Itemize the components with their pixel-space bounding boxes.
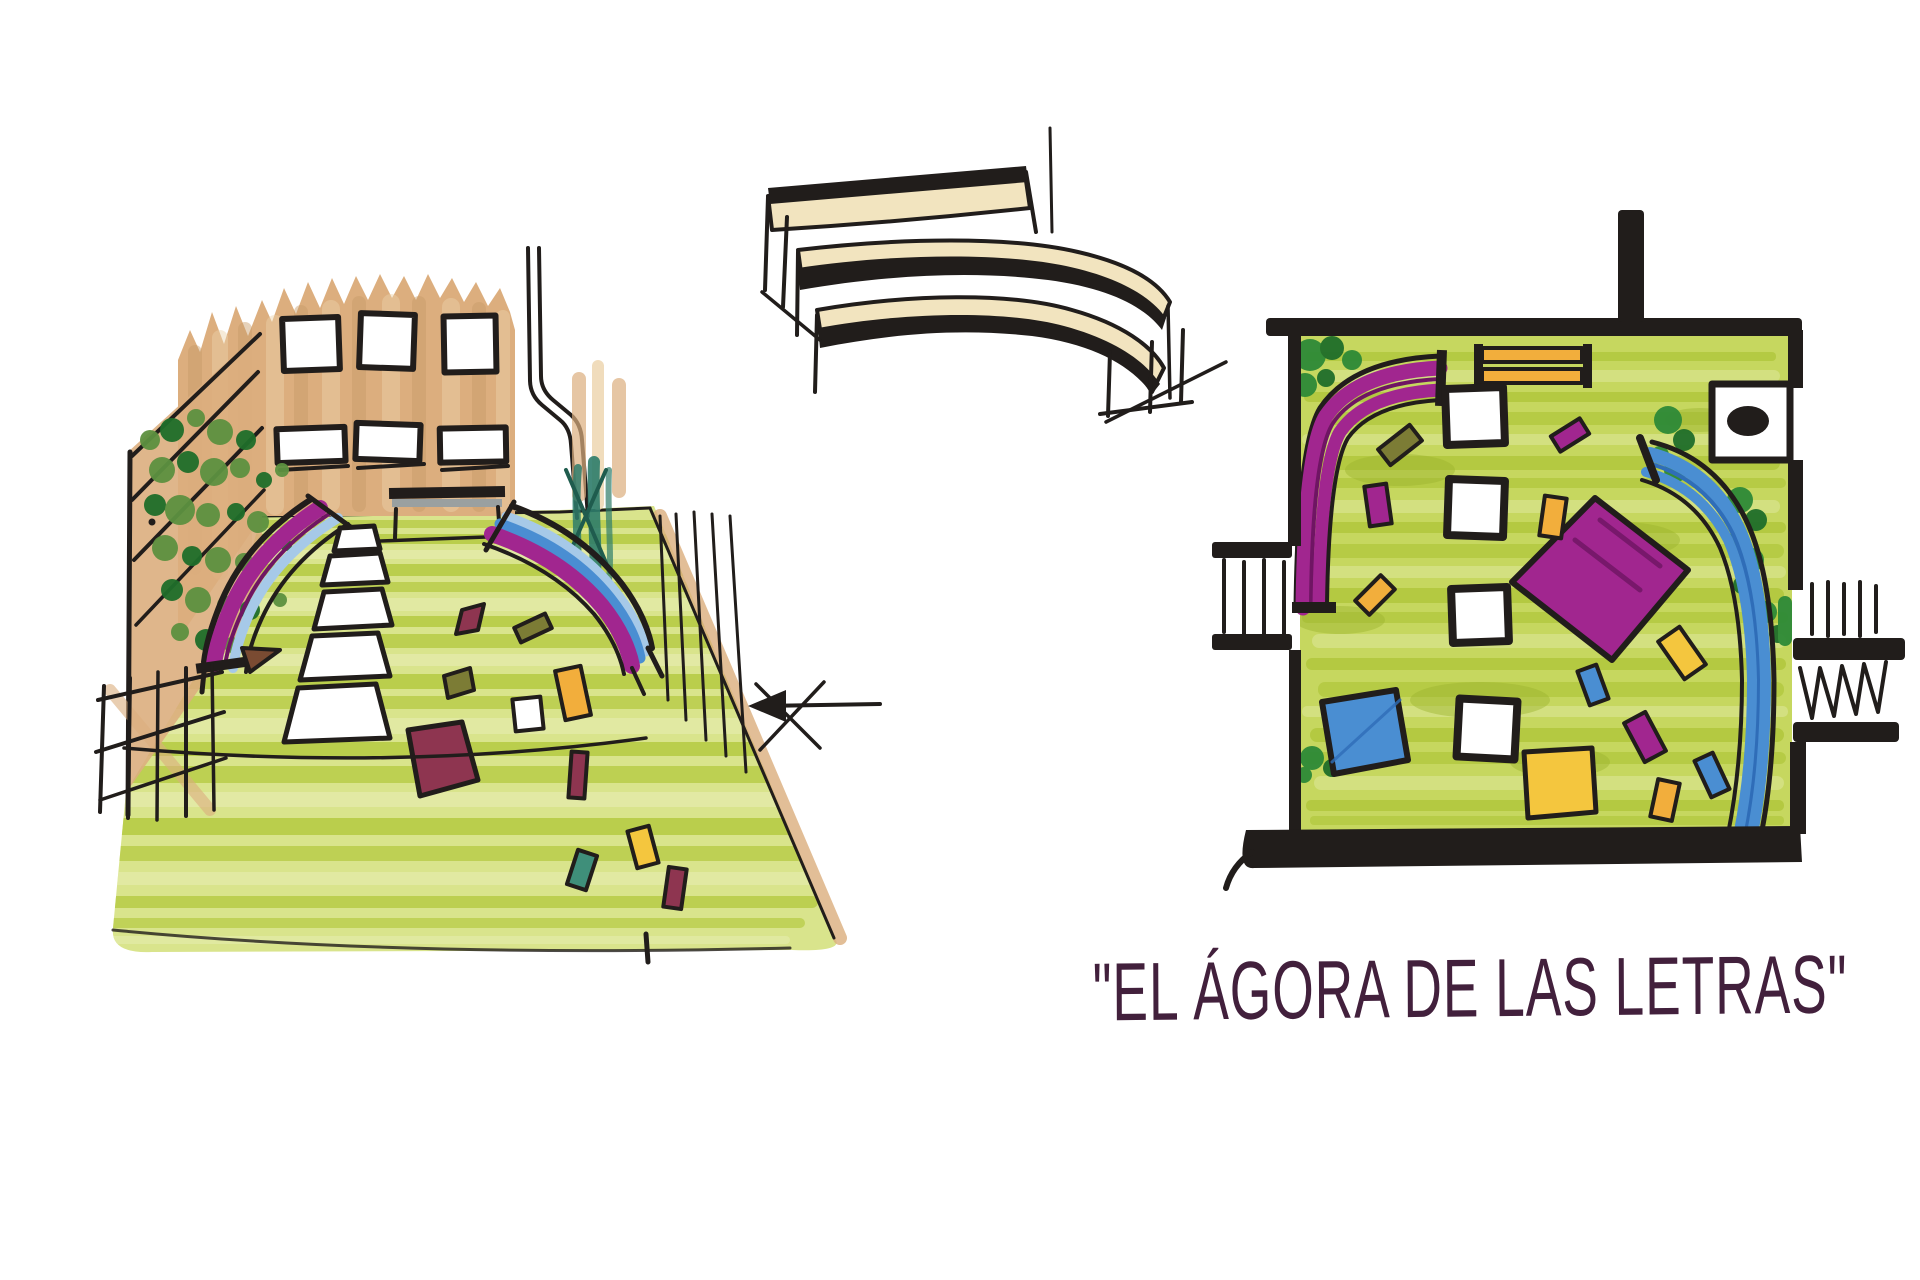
plan-yellow-blanket xyxy=(1524,748,1596,818)
steps-bench-sketch xyxy=(762,128,1226,422)
tree-icon xyxy=(1727,406,1769,436)
wall-pillar xyxy=(1618,210,1644,322)
plumb-line xyxy=(1050,128,1052,232)
facade-windows-lower xyxy=(276,423,506,463)
plan-planter xyxy=(1712,384,1790,460)
plan-sketch xyxy=(1212,210,1905,888)
sketch-page: "EL ÁGORA DE LAS LETRAS" xyxy=(0,0,1920,1280)
sketch-image xyxy=(0,0,1920,1280)
facade-windows-upper xyxy=(282,313,496,372)
perspective-sketch xyxy=(66,248,880,962)
caption-title: "EL ÁGORA DE LAS LETRAS" xyxy=(1092,913,1847,1063)
entry-steps xyxy=(1224,560,1284,636)
plan-blue-blanket xyxy=(1322,690,1408,774)
